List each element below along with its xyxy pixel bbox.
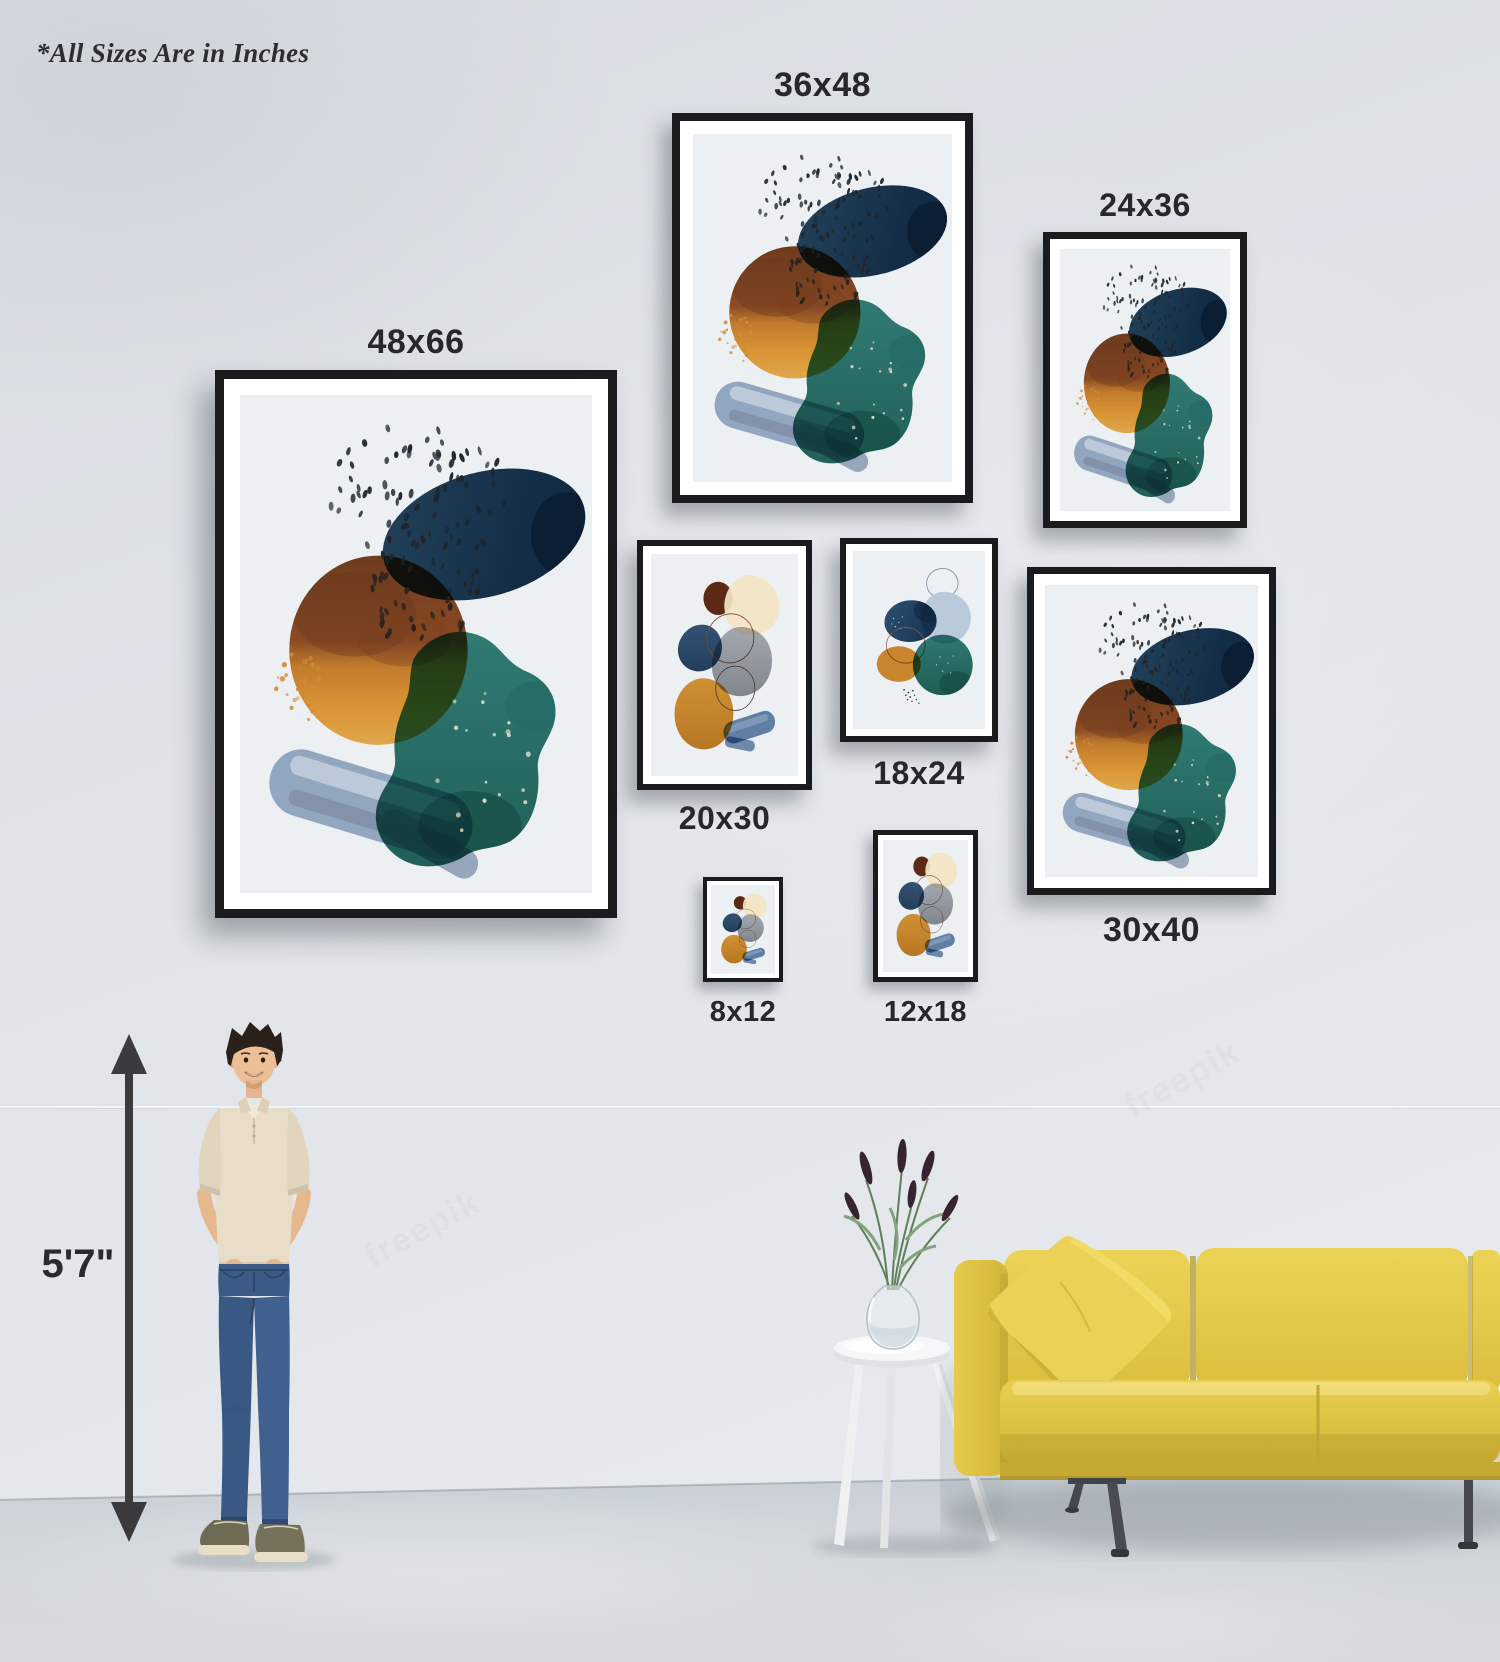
frame-20x30 bbox=[637, 540, 812, 790]
frame-30x40 bbox=[1027, 567, 1276, 895]
sofa-arm bbox=[954, 1260, 1008, 1476]
abstract-artwork bbox=[240, 395, 592, 893]
frame-18x24 bbox=[840, 538, 998, 742]
size-label-8x12: 8x12 bbox=[703, 996, 783, 1029]
frame-group-24x36: 24x36 bbox=[1043, 232, 1247, 528]
abstract-artwork bbox=[693, 134, 952, 482]
abstract-artwork bbox=[883, 840, 968, 972]
size-label-36x48: 36x48 bbox=[672, 66, 973, 105]
frame-48x66 bbox=[215, 370, 617, 918]
frame-group-18x24: 18x24 bbox=[840, 538, 998, 742]
size-label-48x66: 48x66 bbox=[215, 323, 617, 362]
frame-8x12 bbox=[703, 877, 783, 982]
frame-group-12x18: 12x18 bbox=[873, 830, 978, 982]
abstract-artwork bbox=[1060, 249, 1230, 511]
frame-group-8x12: 8x12 bbox=[703, 877, 783, 982]
abstract-artwork bbox=[853, 551, 985, 729]
frame-group-36x48: 36x48 bbox=[672, 113, 973, 503]
height-arrow bbox=[103, 1030, 155, 1546]
size-label-20x30: 20x30 bbox=[637, 800, 812, 837]
abstract-artwork bbox=[651, 554, 798, 776]
abstract-artwork bbox=[1045, 585, 1258, 877]
frame-group-30x40: 30x40 bbox=[1027, 567, 1276, 895]
size-label-18x24: 18x24 bbox=[840, 755, 998, 792]
person-figure bbox=[162, 1012, 342, 1572]
back-cushion bbox=[1196, 1248, 1468, 1390]
poster-size-comparison-scene: freepik freepik *All Sizes Are in Inches… bbox=[0, 0, 1500, 1662]
frame-12x18 bbox=[873, 830, 978, 982]
frame-group-48x66: 48x66 bbox=[215, 370, 617, 918]
height-label: 5'7" bbox=[26, 1242, 130, 1287]
frame-36x48 bbox=[672, 113, 973, 503]
frame-24x36 bbox=[1043, 232, 1247, 528]
abstract-artwork bbox=[711, 885, 775, 974]
sofa bbox=[940, 1222, 1500, 1562]
size-label-12x18: 12x18 bbox=[873, 996, 978, 1029]
frame-group-20x30: 20x30 bbox=[637, 540, 812, 790]
size-label-24x36: 24x36 bbox=[1043, 187, 1247, 224]
size-label-30x40: 30x40 bbox=[1027, 911, 1276, 950]
sizes-note: *All Sizes Are in Inches bbox=[36, 38, 309, 69]
